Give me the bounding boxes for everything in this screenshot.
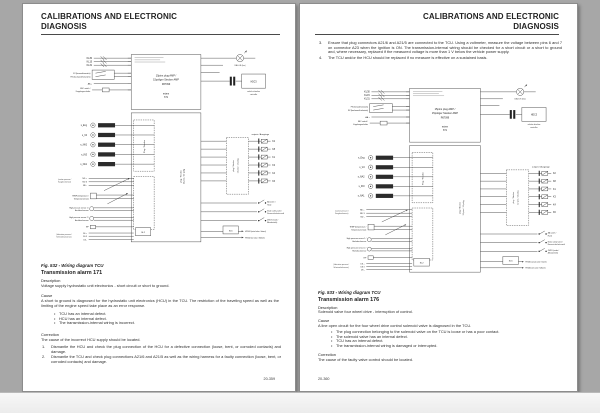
svg-text:KEC switch /: KEC switch / <box>80 87 91 90</box>
svg-text:s_Vd: s_Vd <box>82 135 88 137</box>
svg-text:R67099: R67099 <box>162 83 171 86</box>
svg-text:15pins plug AMP /: 15pins plug AMP / <box>435 107 456 111</box>
svg-text:HDC3: HDC3 <box>251 81 258 83</box>
svg-text:Brake safety valve /: Brake safety valve / <box>267 210 282 213</box>
tcu-wiring-diagram: 15pins plug AMP /15poliger Stecker AMPR6… <box>330 78 572 286</box>
procedure-step-list: 3.Ensure that plug connectors A21/6 and … <box>318 41 562 61</box>
svg-text:KL15: KL15 <box>364 94 370 97</box>
svg-text:4WDV (mode /: 4WDV (mode / <box>548 250 560 252</box>
svg-text:ND -: ND - <box>83 185 87 187</box>
description-text: Voltage supply hydrostatic unit electron… <box>41 284 279 289</box>
svg-text:EP: EP <box>364 257 367 259</box>
correction-text: The cause of the faulty valve control sh… <box>318 358 560 363</box>
alarm-title: Transmission alarm 176 <box>318 297 379 303</box>
svg-text:KL30: KL30 <box>364 91 370 94</box>
svg-text:AA switch /: AA switch / <box>267 201 276 204</box>
svg-text:K2: K2 <box>272 141 275 143</box>
svg-text:Hochdrucksensor: Hochdrucksensor <box>75 209 89 212</box>
svg-text:HY3062 (set value / Sollwert): HY3062 (set value / Sollwert) <box>525 267 545 270</box>
bullet-item: The transmission-internal wiring is dama… <box>336 344 437 349</box>
svg-text:AA +: AA + <box>88 83 93 86</box>
step-text: Dismantle the TCU and check plug connect… <box>51 355 281 364</box>
svg-text:TEMP (temperature /: TEMP (temperature / <box>72 194 89 197</box>
svg-text:HY3061 (actual value / Istwert: HY3061 (actual value / Istwert) <box>245 230 266 233</box>
svg-text:ND -: ND - <box>360 217 364 219</box>
svg-text:K4: K4 <box>553 204 556 206</box>
svg-text:Schmierdrucksensor): Schmierdrucksensor) <box>56 236 72 238</box>
svg-text:High pressure sensor 2 /: High pressure sensor 2 / <box>69 216 89 219</box>
svg-text:extern: extern <box>163 92 170 95</box>
svg-text:Kupplungsschalter: Kupplungsschalter <box>76 90 91 93</box>
svg-text:DS +: DS + <box>361 263 365 265</box>
svg-text:K2: K2 <box>553 173 556 175</box>
svg-text:DS -: DS - <box>83 239 87 241</box>
svg-text:controller: controller <box>530 126 538 129</box>
svg-text:s_NA1: s_NA1 <box>80 163 87 166</box>
svg-text:s_NA1: s_NA1 <box>358 195 365 198</box>
svg-text:(lubrication pressure /: (lubrication pressure / <box>56 233 72 236</box>
svg-text:ND 3: ND 3 <box>360 213 365 215</box>
svg-text:High pressure sensor 1 /: High pressure sensor 1 / <box>69 206 89 209</box>
svg-text:Brake safety valve /: Brake safety valve / <box>548 240 563 243</box>
svg-text:plug / Stecker: plug / Stecker <box>459 202 462 214</box>
svg-text:Hand: Hand <box>548 235 552 237</box>
svg-text:ND +: ND + <box>360 210 365 212</box>
svg-text:K8: K8 <box>553 181 556 183</box>
svg-text:Bremssicherheitsventil: Bremssicherheitsventil <box>267 212 284 215</box>
svg-text:K3: K3 <box>272 165 275 167</box>
svg-text:K6: K6 <box>272 181 275 183</box>
svg-text:outputs / Ausgänge: outputs / Ausgänge <box>532 165 550 168</box>
svg-text:Hochdrucksensor: Hochdrucksensor <box>352 241 366 243</box>
svg-text:DS 3: DS 3 <box>83 236 87 238</box>
title-divider <box>41 34 280 35</box>
svg-text:Plug / Stecker: Plug / Stecker <box>421 172 424 185</box>
svg-text:s_IN3: s_IN3 <box>359 186 366 188</box>
page-number: 20-360 <box>318 377 329 381</box>
svg-text:K1: K1 <box>553 189 556 191</box>
svg-text:Hochdrucksensor: Hochdrucksensor <box>352 251 366 253</box>
correction-text: The cause of the incorrect HCU supply sh… <box>41 338 279 343</box>
svg-text:(suction pressure /: (suction pressure / <box>58 178 72 181</box>
alarm-title: Transmission alarm 171 <box>41 270 102 276</box>
svg-text:outputs / Ausgänge: outputs / Ausgänge <box>252 133 270 136</box>
step-text: Dismantle the HCU and check the plug con… <box>51 345 281 354</box>
svg-text:s_NA2: s_NA2 <box>358 176 365 179</box>
svg-text:Bremssicherheitsventil: Bremssicherheitsventil <box>548 243 566 246</box>
svg-text:(suction pressure /: (suction pressure / <box>335 209 349 212</box>
document-page-right: CALIBRATIONS AND ELECTRONIC DIAGNOSIS 3.… <box>299 3 578 392</box>
title-divider <box>315 34 559 35</box>
correction-step-list: 1.Dismantle the HCU and check the plug c… <box>41 345 281 365</box>
svg-text:extern: extern <box>442 125 449 128</box>
svg-text:15poliger Stecker AMP: 15poliger Stecker AMP <box>432 111 458 115</box>
svg-text:KL30: KL30 <box>87 57 93 60</box>
svg-text:ST1: ST1 <box>443 130 448 132</box>
bullet-item: The transmission-internal wiring is inco… <box>59 321 135 326</box>
pdf-viewer-window: CALIBRATIONS AND ELECTRONIC DIAGNOSIS 15… <box>0 0 600 413</box>
svg-text:Allradantrieb): Allradantrieb) <box>267 221 277 224</box>
svg-text:s_Vd: s_Vd <box>359 167 365 169</box>
svg-text:4WDV (mode /: 4WDV (mode / <box>267 219 279 221</box>
svg-text:RV (backward/rückwärts): RV (backward/rückwärts) <box>71 76 91 79</box>
svg-text:s_NA2: s_NA2 <box>80 144 87 147</box>
svg-text:ND +: ND + <box>83 178 88 180</box>
svg-text:vehicle driveline: vehicle driveline <box>528 124 541 126</box>
svg-text:Plug / Stecker: Plug / Stecker <box>143 140 146 153</box>
svg-text:KEC switch /: KEC switch / <box>358 120 369 123</box>
svg-text:Saugdrucksensor): Saugdrucksensor) <box>335 213 349 215</box>
svg-text:15pins plug AMP /: 15pins plug AMP / <box>156 74 177 78</box>
svg-text:plug / Stecker: plug / Stecker <box>179 170 182 183</box>
svg-text:(lubrication pressure /: (lubrication pressure / <box>333 263 349 266</box>
svg-text:Temperatursensor): Temperatursensor) <box>74 197 89 200</box>
document-page-left: CALIBRATIONS AND ELECTRONIC DIAGNOSIS 15… <box>22 3 296 392</box>
svg-text:HY3062 (set value / Sollwert): HY3062 (set value / Sollwert) <box>245 236 265 239</box>
svg-text:12 pins / 12 polig: 12 pins / 12 polig <box>184 169 186 184</box>
svg-text:s_IN3: s_IN3 <box>81 154 87 156</box>
svg-text:KL31: KL31 <box>364 98 370 101</box>
svg-text:FV (forward/vorwärts): FV (forward/vorwärts) <box>73 72 90 75</box>
svg-text:DS +: DS + <box>83 233 87 235</box>
svg-text:12 pins / 12 polig: 12 pins / 12 polig <box>463 200 465 215</box>
svg-text:AA switch /: AA switch / <box>548 232 557 235</box>
svg-text:DS -: DS - <box>361 270 365 272</box>
step-text: The TCU and/or the HCU should be replace… <box>328 56 562 61</box>
svg-text:K6: K6 <box>553 212 556 214</box>
svg-text:KL15: KL15 <box>87 61 93 64</box>
step-text: Ensure that plug connectors A21/6 and A2… <box>328 41 562 55</box>
svg-text:FV (forward/vorwärts): FV (forward/vorwärts) <box>351 105 369 108</box>
svg-text:DIAG LR (line): DIAG LR (line) <box>235 64 246 67</box>
svg-text:Allradantrieb): Allradantrieb) <box>548 252 559 255</box>
svg-text:EP: EP <box>86 227 89 229</box>
svg-text:s_Eng: s_Eng <box>358 158 365 160</box>
svg-text:AA +: AA + <box>365 116 370 119</box>
cause-bullet-list: •The plug connection belonging to the so… <box>318 330 560 349</box>
svg-text:HY3061 (actual value / Istwert: HY3061 (actual value / Istwert) <box>525 261 547 264</box>
svg-text:plug / Stecker: plug / Stecker <box>512 191 515 203</box>
page-number: 20-359 <box>264 377 275 381</box>
statusbar: 20-359 (625 / 20 ▾ <box>0 392 600 413</box>
svg-text:Hand: Hand <box>267 204 271 206</box>
svg-text:s_Eng: s_Eng <box>81 125 88 127</box>
svg-text:High pressure sensor 2 /: High pressure sensor 2 / <box>347 248 367 250</box>
svg-text:Saugdrucksensor): Saugdrucksensor) <box>58 182 71 184</box>
svg-text:R67099: R67099 <box>441 116 450 119</box>
svg-text:plug / Stecker: plug / Stecker <box>232 160 235 172</box>
svg-text:K3: K3 <box>553 197 556 199</box>
svg-text:K1: K1 <box>272 157 275 159</box>
page-title: CALIBRATIONS AND ELECTRONIC DIAGNOSIS <box>319 12 559 31</box>
tcu-wiring-diagram: 15pins plug AMP /15poliger Stecker AMPR6… <box>53 44 291 256</box>
page-title: CALIBRATIONS AND ELECTRONIC DIAGNOSIS <box>41 12 281 31</box>
svg-text:K4: K4 <box>272 173 275 175</box>
svg-text:DIAG LR (line): DIAG LR (line) <box>515 98 527 101</box>
svg-text:High pressure sensor 1 /: High pressure sensor 1 / <box>347 238 367 240</box>
description-text: Solenoid valve four wheel drive - interr… <box>318 310 560 315</box>
svg-text:HDC3: HDC3 <box>531 115 538 117</box>
figure-caption: Fig. 532 - Wiring diagram TCU <box>41 263 103 268</box>
svg-text:15poliger Stecker AMP: 15poliger Stecker AMP <box>153 78 179 82</box>
figure-caption: Fig. 533 - Wiring diagram TCU <box>318 290 380 295</box>
svg-text:K8: K8 <box>272 149 275 151</box>
svg-text:Schmierdrucksensor): Schmierdrucksensor) <box>333 267 349 269</box>
svg-text:Temperatursensor): Temperatursensor) <box>351 228 366 231</box>
svg-text:DS 3: DS 3 <box>361 266 365 268</box>
svg-text:ND 3: ND 3 <box>83 182 88 184</box>
svg-text:vehicle driveline: vehicle driveline <box>247 90 260 93</box>
svg-text:12 pins / 12 polig: 12 pins / 12 polig <box>517 190 519 204</box>
cause-bullet-list: •TCU has an internal defect. •HCU has an… <box>41 312 279 326</box>
cause-text: A short to ground is diagnosed for the h… <box>41 299 279 309</box>
svg-text:Hochdrucksensor: Hochdrucksensor <box>75 219 89 222</box>
svg-text:TEMP (temperature /: TEMP (temperature / <box>350 225 367 228</box>
svg-text:controller: controller <box>250 93 258 96</box>
svg-text:12 pins / 12 polig: 12 pins / 12 polig <box>237 159 239 174</box>
svg-text:Kupplungsschalter: Kupplungsschalter <box>353 123 368 126</box>
svg-text:KL31: KL31 <box>87 64 93 67</box>
svg-text:RV (backward/rückwärts): RV (backward/rückwärts) <box>348 109 368 112</box>
